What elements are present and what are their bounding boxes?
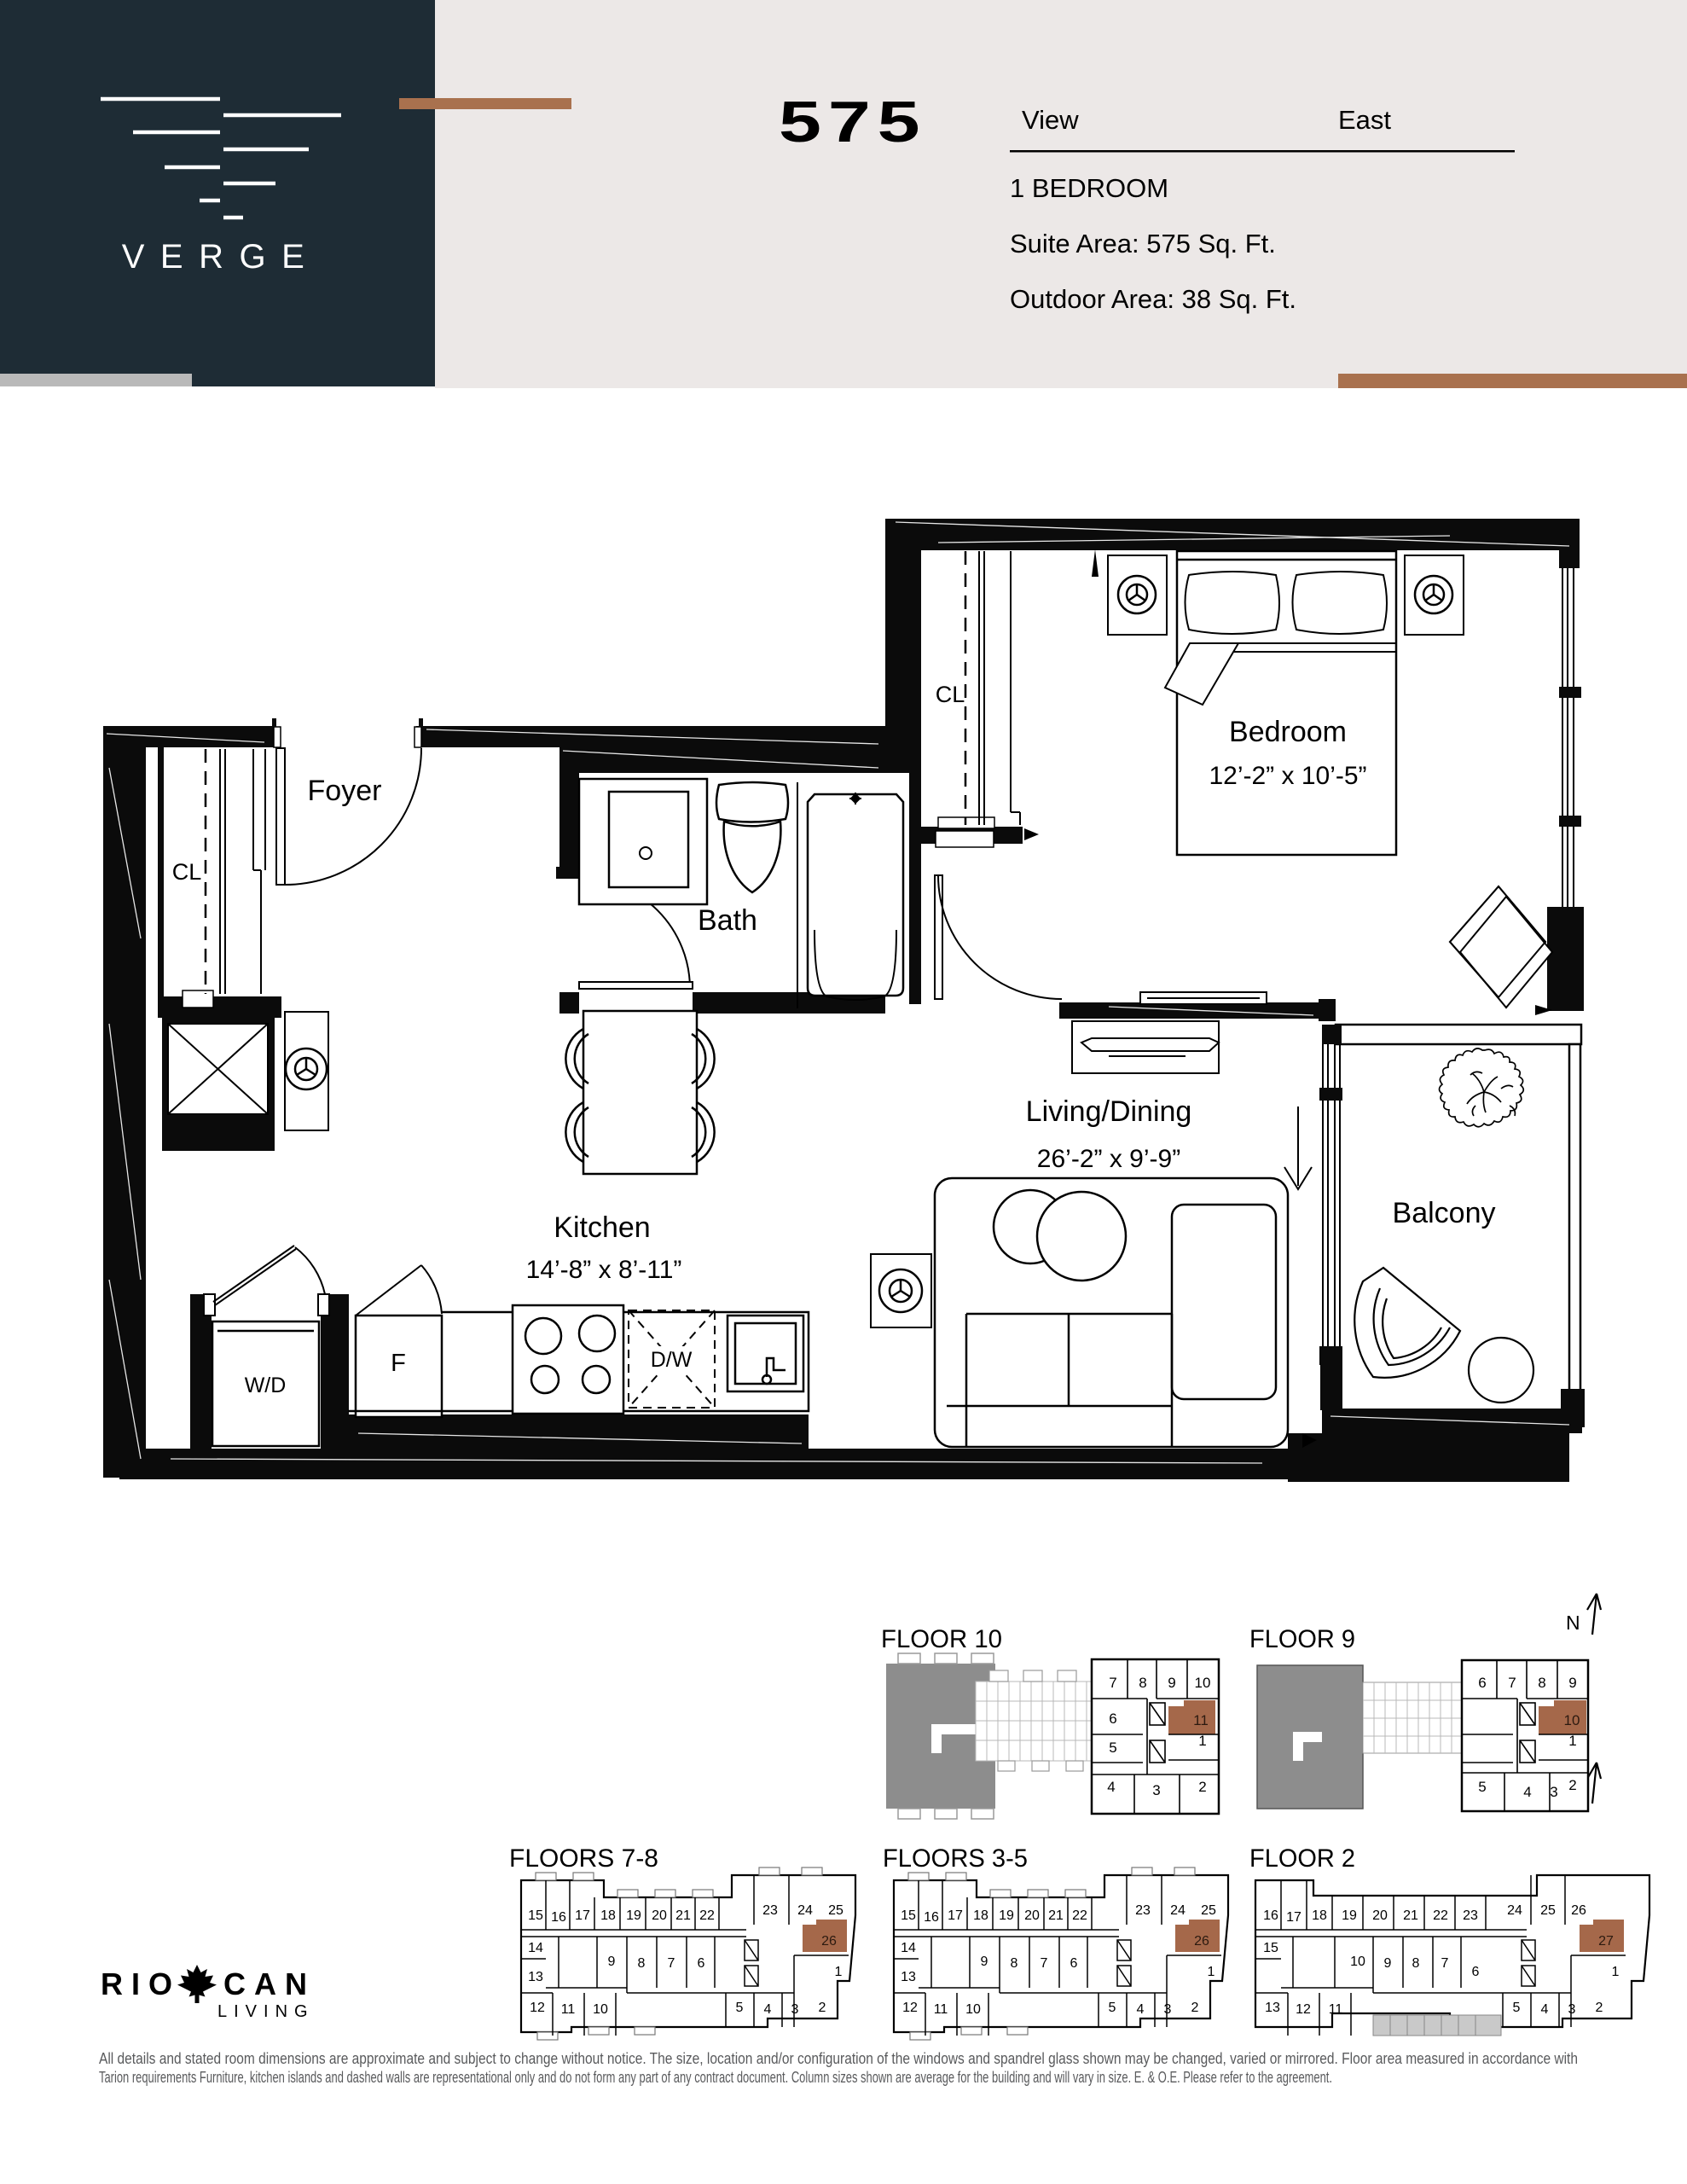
svg-text:21: 21 [1048, 1908, 1064, 1923]
svg-text:16: 16 [1263, 1908, 1278, 1923]
svg-text:Bedroom: Bedroom [1229, 716, 1347, 748]
svg-text:3: 3 [1164, 2002, 1172, 2017]
svg-text:FLOOR 9: FLOOR 9 [1249, 1625, 1355, 1653]
svg-text:24: 24 [1170, 1903, 1186, 1918]
svg-text:3: 3 [1568, 2002, 1576, 2017]
svg-text:LIVING: LIVING [217, 2002, 315, 2021]
svg-text:2: 2 [1198, 1779, 1206, 1795]
svg-text:7: 7 [1441, 1956, 1449, 1971]
svg-text:F: F [391, 1350, 406, 1377]
svg-text:Tarion requirements Furniture,: Tarion requirements Furniture, kitchen i… [99, 2068, 1332, 2086]
svg-text:575: 575 [779, 90, 926, 154]
svg-text:8: 8 [638, 1956, 646, 1971]
svg-text:12: 12 [530, 2001, 545, 2015]
svg-text:12’-2” x 10’-5”: 12’-2” x 10’-5” [1209, 762, 1366, 790]
svg-text:3: 3 [1152, 1782, 1160, 1798]
svg-text:FLOOR 10: FLOOR 10 [881, 1625, 1002, 1653]
svg-text:East: East [1338, 105, 1391, 135]
svg-text:12: 12 [1296, 2002, 1311, 2017]
svg-text:13: 13 [1265, 2001, 1280, 2015]
svg-text:2: 2 [819, 2001, 826, 2015]
svg-text:23: 23 [762, 1903, 778, 1918]
svg-text:16: 16 [924, 1910, 939, 1925]
svg-text:7: 7 [1109, 1675, 1116, 1691]
svg-text:26: 26 [1194, 1934, 1209, 1949]
svg-text:6: 6 [1478, 1675, 1486, 1691]
svg-text:25: 25 [1540, 1903, 1556, 1918]
svg-text:All details and stated room di: All details and stated room dimensions a… [99, 2049, 1578, 2067]
svg-text:4: 4 [1137, 2002, 1145, 2017]
svg-text:19: 19 [626, 1908, 641, 1923]
svg-text:Outdoor Area: 38 Sq. Ft.: Outdoor Area: 38 Sq. Ft. [1010, 284, 1296, 314]
svg-text:CL: CL [172, 859, 202, 885]
svg-text:3: 3 [1550, 1784, 1557, 1800]
svg-text:20: 20 [1372, 1908, 1388, 1923]
svg-text:Foyer: Foyer [308, 775, 382, 807]
svg-text:21: 21 [1403, 1908, 1418, 1923]
svg-text:27: 27 [1598, 1934, 1614, 1949]
svg-text:25: 25 [828, 1903, 843, 1918]
svg-text:6: 6 [1109, 1711, 1116, 1727]
svg-text:19: 19 [999, 1908, 1014, 1923]
svg-text:8: 8 [1011, 1956, 1018, 1971]
svg-text:10: 10 [965, 2002, 981, 2017]
svg-text:10: 10 [1195, 1675, 1211, 1691]
svg-text:10: 10 [1350, 1955, 1365, 1969]
svg-text:5: 5 [1109, 2001, 1116, 2015]
svg-text:11: 11 [561, 2002, 576, 2017]
svg-text:5: 5 [1478, 1779, 1486, 1795]
svg-text:2: 2 [1568, 1777, 1576, 1793]
svg-text:23: 23 [1463, 1908, 1478, 1923]
svg-text:7: 7 [668, 1956, 675, 1971]
svg-text:15: 15 [528, 1908, 543, 1923]
svg-text:2: 2 [1596, 2001, 1603, 2015]
svg-text:1: 1 [1612, 1965, 1620, 1979]
svg-text:Bath: Bath [698, 904, 757, 937]
svg-text:9: 9 [1384, 1956, 1392, 1971]
svg-text:16: 16 [551, 1910, 566, 1925]
svg-text:18: 18 [973, 1908, 988, 1923]
svg-text:9: 9 [1568, 1675, 1576, 1691]
svg-text:Living/Dining: Living/Dining [1026, 1095, 1192, 1128]
svg-text:19: 19 [1342, 1908, 1357, 1923]
svg-text:8: 8 [1139, 1675, 1146, 1691]
svg-text:11: 11 [934, 2002, 948, 2017]
svg-text:W/D: W/D [245, 1374, 287, 1397]
svg-text:4: 4 [1107, 1779, 1115, 1795]
svg-text:26: 26 [1571, 1903, 1586, 1918]
svg-text:8: 8 [1538, 1675, 1545, 1691]
svg-text:1: 1 [835, 1965, 843, 1979]
svg-text:1: 1 [1208, 1965, 1215, 1979]
svg-text:24: 24 [1507, 1903, 1522, 1918]
svg-text:5: 5 [736, 2001, 744, 2015]
svg-text:22: 22 [699, 1908, 715, 1923]
svg-text:22: 22 [1433, 1908, 1448, 1923]
svg-text:4: 4 [764, 2002, 772, 2017]
svg-text:FLOORS 7-8: FLOORS 7-8 [509, 1844, 658, 1873]
svg-text:20: 20 [1024, 1908, 1040, 1923]
svg-text:18: 18 [1312, 1908, 1327, 1923]
svg-text:14’-8” x 8’-11”: 14’-8” x 8’-11” [526, 1256, 682, 1284]
svg-text:CAN: CAN [223, 1966, 316, 2001]
svg-text:22: 22 [1072, 1908, 1087, 1923]
svg-text:15: 15 [901, 1908, 916, 1923]
svg-text:View: View [1022, 105, 1079, 135]
svg-text:15: 15 [1263, 1941, 1278, 1955]
svg-text:18: 18 [600, 1908, 616, 1923]
svg-text:26: 26 [821, 1934, 837, 1949]
svg-text:3: 3 [791, 2002, 799, 2017]
svg-text:9: 9 [1168, 1675, 1175, 1691]
svg-text:13: 13 [528, 1970, 543, 1984]
svg-text:17: 17 [575, 1908, 590, 1923]
svg-text:5: 5 [1109, 1740, 1116, 1756]
svg-text:D/W: D/W [651, 1348, 693, 1372]
svg-text:9: 9 [981, 1955, 988, 1969]
svg-text:1 BEDROOM: 1 BEDROOM [1010, 173, 1168, 203]
svg-text:9: 9 [608, 1955, 616, 1969]
svg-text:11: 11 [1329, 2002, 1343, 2017]
svg-text:6: 6 [1070, 1956, 1078, 1971]
svg-text:1: 1 [1568, 1733, 1576, 1749]
svg-text:CL: CL [936, 682, 965, 707]
svg-text:FLOORS 3-5: FLOORS 3-5 [883, 1844, 1028, 1873]
svg-text:6: 6 [698, 1956, 705, 1971]
svg-text:4: 4 [1541, 2002, 1549, 2017]
svg-text:8: 8 [1412, 1956, 1420, 1971]
svg-text:6: 6 [1472, 1965, 1480, 1979]
svg-text:17: 17 [1286, 1910, 1301, 1925]
svg-text:17: 17 [948, 1908, 963, 1923]
svg-text:14: 14 [528, 1941, 543, 1955]
svg-text:1: 1 [1198, 1733, 1206, 1749]
svg-text:7: 7 [1041, 1956, 1048, 1971]
svg-text:4: 4 [1523, 1784, 1531, 1800]
svg-text:25: 25 [1201, 1903, 1216, 1918]
svg-text:7: 7 [1508, 1675, 1516, 1691]
svg-text:26’-2” x 9’-9”: 26’-2” x 9’-9” [1037, 1145, 1180, 1173]
svg-text:2: 2 [1191, 2001, 1199, 2015]
svg-text:N: N [1566, 1612, 1580, 1634]
svg-text:11: 11 [1193, 1712, 1209, 1728]
svg-text:21: 21 [675, 1908, 691, 1923]
svg-text:13: 13 [901, 1970, 916, 1984]
svg-text:RIO: RIO [101, 1966, 181, 2001]
svg-text:14: 14 [901, 1941, 916, 1955]
svg-text:10: 10 [1564, 1712, 1580, 1728]
svg-text:23: 23 [1135, 1903, 1151, 1918]
svg-text:20: 20 [652, 1908, 667, 1923]
svg-text:5: 5 [1513, 2001, 1521, 2015]
svg-text:Kitchen: Kitchen [554, 1211, 650, 1244]
svg-text:12: 12 [902, 2001, 918, 2015]
svg-text:10: 10 [593, 2002, 608, 2017]
svg-text:24: 24 [797, 1903, 813, 1918]
svg-text:Suite Area: 575 Sq. Ft.: Suite Area: 575 Sq. Ft. [1010, 229, 1276, 258]
svg-text:FLOOR 2: FLOOR 2 [1249, 1844, 1355, 1873]
svg-text:VERGE: VERGE [122, 238, 321, 276]
svg-text:Balcony: Balcony [1393, 1197, 1496, 1229]
